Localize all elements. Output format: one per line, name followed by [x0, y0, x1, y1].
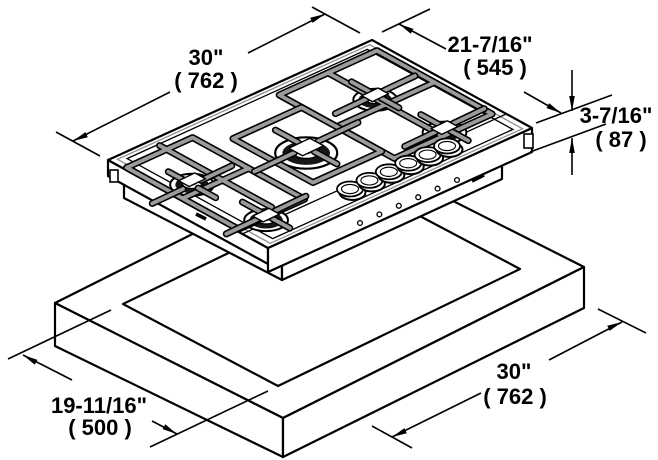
dim-height-mm: ( 87 ) — [595, 127, 646, 152]
dim-height-inches: 3-7/16" — [580, 103, 653, 128]
dim-top-width-mm: ( 762 ) — [174, 68, 238, 93]
cooktop-foot-right — [524, 134, 533, 148]
knob-6 — [434, 139, 463, 158]
cooktop-foot-left — [110, 170, 118, 182]
diagram-canvas: 30" ( 762 ) 21-7/16" ( 545 ) 3-7/16" ( 8… — [0, 0, 658, 460]
dim-height: 3-7/16" ( 87 ) — [530, 70, 652, 175]
dim-cutout-width-mm: ( 762 ) — [483, 384, 547, 409]
dim-top-depth-mm: ( 545 ) — [463, 55, 527, 80]
dim-top-depth-inches: 21-7/16" — [447, 32, 532, 57]
cooktop-installation-diagram: 30" ( 762 ) 21-7/16" ( 545 ) 3-7/16" ( 8… — [0, 0, 658, 460]
dim-cutout-depth-mm: ( 500 ) — [68, 415, 132, 440]
dim-cutout-width-inches: 30" — [497, 359, 532, 384]
dim-top-width-inches: 30" — [189, 45, 224, 70]
